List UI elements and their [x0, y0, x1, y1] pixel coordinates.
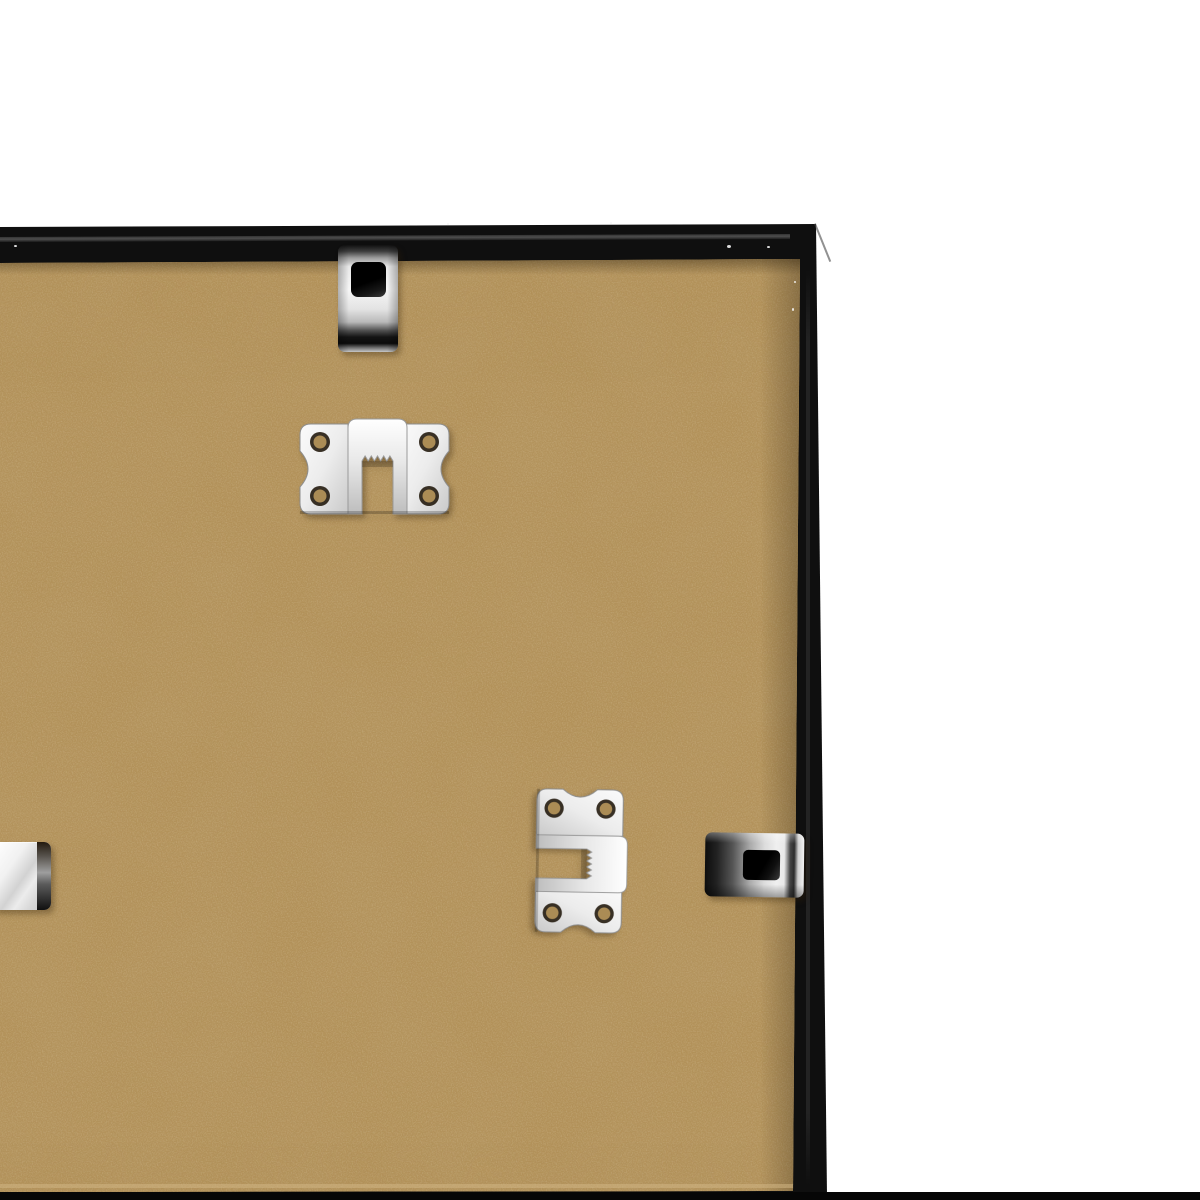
product-photo-frame-back	[0, 0, 1200, 1200]
left-edge-clip	[0, 842, 51, 910]
dust-speck	[767, 246, 770, 248]
top-turn-clip	[338, 245, 398, 352]
side-turn-clip	[705, 832, 805, 897]
dust-speck	[727, 245, 731, 248]
frame-right-edge-sliver	[806, 270, 810, 1185]
mdf-texture	[0, 0, 1200, 1200]
sawtooth-hanger-top	[296, 417, 453, 515]
sawtooth-hanger-side	[533, 786, 631, 936]
sawtooth-hanger-side-art	[534, 785, 631, 937]
dust-speck	[447, 223, 449, 225]
mdf-backing-board	[0, 0, 1200, 1200]
top-turn-clip-hole	[351, 262, 386, 297]
side-turn-clip-hole	[743, 850, 780, 881]
dust-speck	[610, 222, 612, 224]
dust-speck	[794, 281, 796, 283]
bottom-photo-border	[0, 1192, 1200, 1200]
mdf-bottom-edge-highlight	[0, 1184, 795, 1188]
dust-speck	[14, 245, 17, 247]
frame-corner-miter	[814, 223, 831, 262]
dust-speck	[792, 308, 794, 311]
